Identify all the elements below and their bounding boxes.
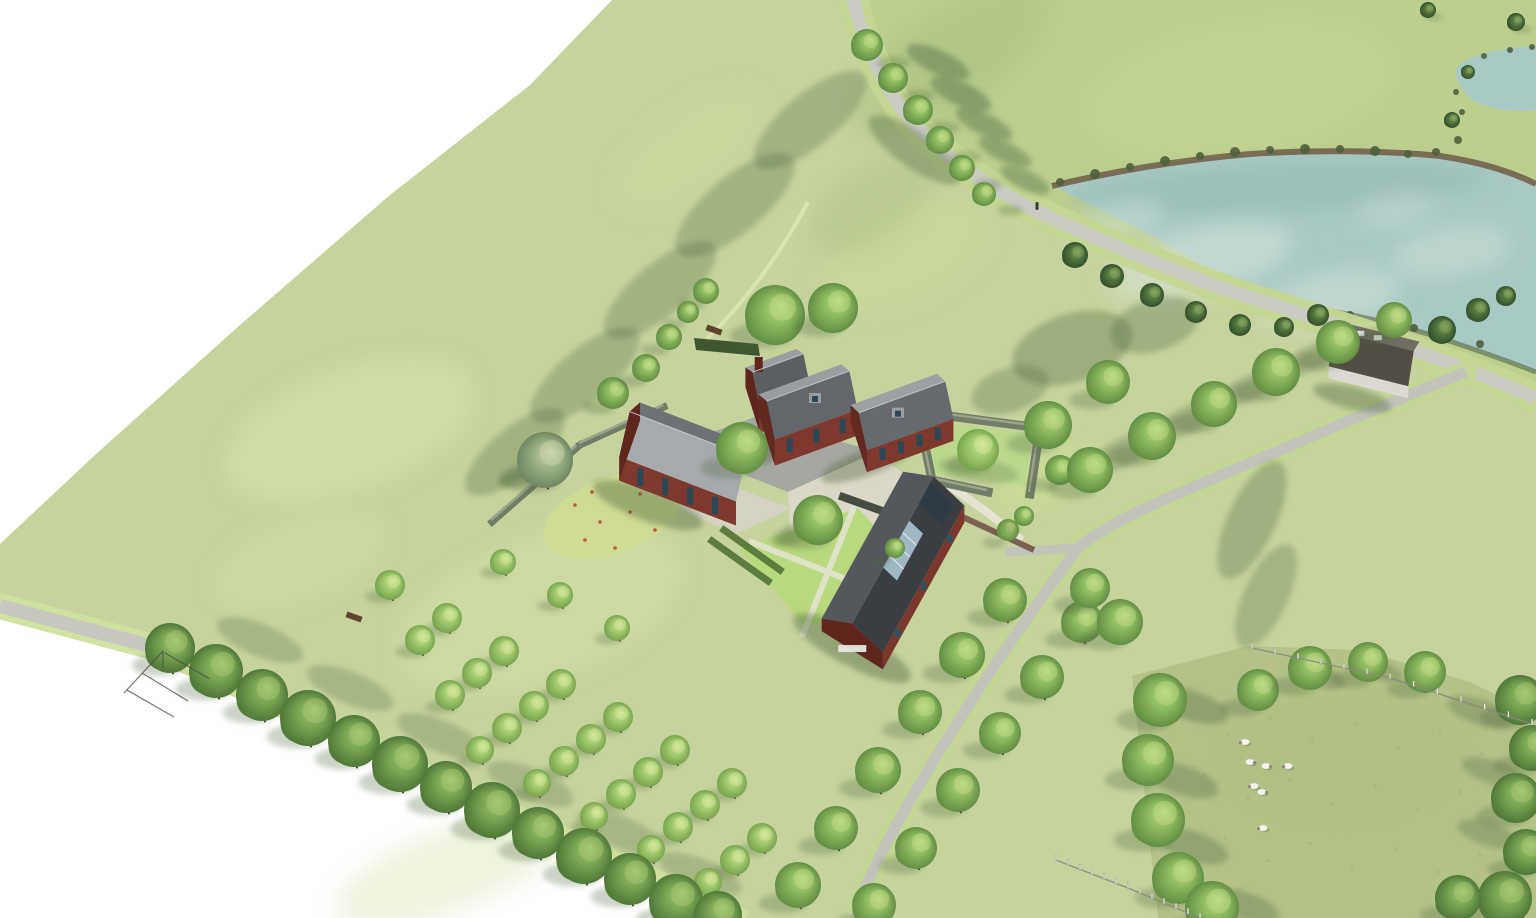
paddock-speckle: [1330, 802, 1333, 805]
sheep-head: [1282, 765, 1285, 768]
lakeshore-bushe: [1466, 298, 1490, 322]
bank-tree-highlight: [643, 358, 656, 371]
wildflower-dot: [583, 538, 587, 542]
upper-lane-tree-highlight: [1271, 355, 1293, 377]
reed-clump: [1454, 136, 1462, 144]
orchard-tree-highlight: [729, 772, 743, 786]
orchard-tree-highlight: [615, 706, 629, 720]
main-house-window: [813, 428, 819, 442]
person-on-road: [1036, 202, 1039, 210]
fence-post: [1531, 719, 1533, 725]
orchard-tree-highlight: [504, 717, 518, 731]
roadside-tree-highlight: [915, 99, 929, 113]
reed-clump: [1370, 146, 1380, 156]
orchard-tree-highlight: [474, 662, 488, 676]
orchard-tree-highlight: [500, 553, 512, 565]
fence-post: [1389, 673, 1391, 679]
fence-post: [1460, 696, 1462, 702]
orchard-tree-highlight: [618, 783, 632, 797]
orchard-tree-highlight: [672, 739, 686, 753]
reed-clump: [1476, 340, 1484, 348]
paddock-speckle: [1438, 728, 1441, 731]
walled-garden-tree-highlight: [974, 435, 993, 454]
paddock-speckle: [1393, 847, 1396, 850]
orchard-tree-highlight: [447, 684, 461, 698]
reed-clump: [1196, 152, 1204, 160]
bank-tree-highlight: [703, 282, 715, 294]
paddock-speckle: [1226, 733, 1229, 736]
orchard-tree-highlight: [705, 872, 718, 885]
roadside-tree-highlight: [864, 34, 878, 48]
boundary-row-tree-highlight: [165, 630, 188, 653]
paddock-rim-tree-highlight: [1364, 648, 1382, 666]
reed-clump: [1266, 146, 1274, 154]
fence-post: [1508, 711, 1510, 717]
orchard-tree-highlight: [557, 586, 569, 598]
lakeshore-bushe: [1062, 242, 1088, 268]
paddock-speckle: [1416, 808, 1419, 811]
orchard-tree-highlight: [501, 640, 515, 654]
upper-lane-tree-highlight: [1390, 307, 1406, 323]
specimen-tree-highlight: [539, 440, 564, 465]
fence-post: [1091, 869, 1093, 875]
boundary-row-tree-highlight: [625, 861, 648, 884]
driveway-branch: [1006, 548, 1078, 552]
lakeshore-bushe: [1100, 264, 1124, 288]
lakeshore-bushe: [1496, 286, 1516, 306]
roadside-tree-highlight: [937, 130, 950, 143]
paddock-rim-tree-highlight: [1207, 889, 1231, 913]
wildflower-dot: [598, 520, 602, 524]
wildflower-dot: [573, 503, 577, 507]
fence-post: [1320, 658, 1322, 664]
lakeshore-bushe-highlight: [1439, 320, 1452, 333]
avenue-tree-highlight: [793, 869, 814, 890]
farmstead-tree-highlight: [737, 430, 760, 453]
avenue-tree-highlight: [832, 812, 852, 832]
orchard-tree-highlight: [675, 816, 689, 830]
lakeshore-bushe-highlight: [1450, 114, 1457, 121]
farmstead-tree-highlight: [1022, 509, 1031, 518]
paddock-speckle: [1223, 836, 1226, 839]
orchard-tree-highlight: [477, 740, 490, 753]
lakeshore-bushe-highlight: [1282, 320, 1291, 329]
paddock-right-tree-highlight: [1453, 882, 1474, 903]
roadside-tree-shadow: [997, 205, 1022, 215]
reed-clump: [1453, 89, 1459, 95]
orchard-tree-highlight: [591, 806, 604, 819]
fence-post: [1187, 908, 1189, 914]
fence-post: [1297, 653, 1299, 659]
farmstead-tree-shadow: [1000, 524, 1021, 532]
farmstead-tree-shadow: [982, 538, 1005, 547]
orchard-tree-highlight: [759, 827, 773, 841]
fence-post: [1139, 888, 1141, 894]
fence-post: [1199, 913, 1201, 918]
sheep-head: [1248, 785, 1251, 788]
paddock-rim-tree-highlight: [1115, 606, 1136, 627]
grass-tone-patch: [1220, 700, 1460, 820]
orchard-tree-highlight: [588, 728, 602, 742]
west-barn-window: [687, 487, 693, 504]
boundary-row-tree-highlight: [533, 815, 556, 838]
paddock-speckle: [1436, 870, 1439, 873]
reed-clump: [1404, 150, 1412, 158]
wildflower-dot: [653, 528, 657, 532]
paddock-rim-tree-highlight: [1143, 742, 1166, 765]
east-house-dormer-window: [895, 411, 901, 417]
lakeshore-bushe: [1274, 317, 1294, 337]
paddock-rim-tree-highlight: [1155, 681, 1179, 705]
pasture-bushe-highlight: [1426, 4, 1433, 11]
paddock-right-tree-highlight: [1500, 879, 1524, 903]
boundary-row-tree-highlight: [486, 790, 511, 815]
reed-clump: [1056, 178, 1064, 186]
paddock-rim-tree-highlight: [1153, 801, 1177, 825]
bank-tree-highlight: [769, 294, 796, 321]
lakeshore-bushe: [1444, 112, 1460, 128]
lakeshore-bushe-highlight: [1476, 301, 1487, 312]
reed-clump: [1459, 109, 1465, 115]
paddock-speckle: [1310, 740, 1313, 743]
avenue-tree-highlight: [1038, 661, 1058, 681]
driveway-branch-surface: [1006, 548, 1078, 552]
upper-lane-tree-highlight: [1147, 419, 1169, 441]
fence-post: [1343, 663, 1345, 669]
paddock-speckle: [1288, 778, 1291, 781]
fence-post: [1437, 688, 1439, 694]
sheep-head: [1239, 741, 1242, 744]
paddock-speckle: [1480, 752, 1483, 755]
fence-post: [1127, 883, 1129, 889]
reed-clump: [1529, 44, 1535, 50]
orchard-tree-highlight: [444, 607, 458, 621]
sheep-head: [1269, 765, 1272, 768]
lakeshore-bushe-highlight: [1504, 289, 1513, 298]
west-barn-window: [712, 497, 718, 514]
lakeshore-bushe: [1461, 65, 1475, 79]
orchard-tree-highlight: [417, 629, 431, 643]
lakeshore-bushe-highlight: [1238, 317, 1248, 327]
reed-clump: [1090, 169, 1100, 179]
avenue-tree-highlight: [912, 833, 931, 852]
main-house-window: [787, 438, 793, 452]
avenue-tree-highlight: [957, 639, 978, 660]
gate-sketch-line: [127, 690, 174, 717]
fence-post: [1151, 893, 1153, 899]
east-meadow-tree-highlight: [1043, 408, 1065, 430]
south-barn-window: [921, 582, 927, 591]
south-barn-glazed-base-band: [838, 645, 866, 652]
orchard-tree-highlight: [558, 673, 572, 687]
boundary-row-tree-highlight: [349, 723, 372, 746]
boundary-row-tree-highlight: [441, 769, 464, 792]
avenue-tree-highlight: [954, 774, 974, 794]
paddock-speckle: [1246, 796, 1249, 799]
fence-post: [1115, 878, 1117, 884]
reed-clump: [1432, 148, 1440, 156]
orchard-tree-highlight: [531, 695, 545, 709]
avenue-tree-highlight: [996, 718, 1015, 737]
reed-clump: [1481, 53, 1487, 59]
reed-clump: [1507, 47, 1513, 53]
paddock-rim-tree-highlight: [1173, 860, 1196, 883]
south-barn-window: [947, 534, 953, 543]
bank-tree-highlight: [666, 328, 678, 340]
reed-clump: [1160, 156, 1170, 166]
east-house-window: [935, 428, 941, 440]
paddock-rim-tree-highlight: [1254, 675, 1273, 694]
fence-post: [1055, 855, 1057, 861]
upper-lane-tree-highlight: [1209, 388, 1230, 409]
aerial-site-rendering: [0, 0, 1536, 918]
bank-tree-highlight: [686, 304, 696, 314]
avenue-tree-highlight: [1001, 584, 1021, 604]
boundary-row-tree-highlight: [257, 677, 280, 700]
east-meadow-tree-highlight: [1104, 366, 1124, 386]
lakeshore-bushe-highlight: [1316, 307, 1326, 317]
fence-post: [1274, 648, 1276, 654]
reed-clump: [1230, 147, 1240, 157]
orchard-tree-highlight: [614, 619, 626, 631]
farmstead-tree-highlight: [813, 502, 836, 525]
paddock-speckle: [1268, 716, 1271, 719]
boundary-row-tree-highlight: [302, 698, 327, 723]
fence-post: [1103, 874, 1105, 880]
lakeshore-bushe-highlight: [1467, 67, 1473, 73]
wildflower-dot: [613, 546, 617, 550]
sheep-head: [1265, 791, 1268, 794]
orchard-tree-highlight: [561, 750, 575, 764]
east-house-window: [880, 448, 886, 460]
fence-post: [1484, 704, 1486, 710]
fence-post: [1366, 668, 1368, 674]
upper-lane-tree-highlight: [1085, 454, 1106, 475]
lakeshore-bushe-highlight: [1072, 246, 1084, 258]
farmstead-tree-highlight: [893, 541, 902, 550]
sheep-head: [1257, 827, 1260, 830]
paddock-speckle: [1266, 859, 1269, 862]
orchard-tree-highlight: [387, 574, 401, 588]
boundary-row-tree-highlight: [578, 836, 603, 861]
avenue-tree-highlight: [916, 696, 936, 716]
roadside-tree-highlight: [982, 185, 993, 196]
lakeshore-bushe: [1307, 304, 1329, 326]
paddock-speckle: [1458, 790, 1461, 793]
lakeshore-bushe: [1185, 301, 1207, 323]
farmstead-tree-shadow: [871, 556, 892, 564]
paddock-speckle: [1478, 853, 1481, 856]
fence-post: [1413, 681, 1415, 687]
boundary-row-tree-highlight: [671, 882, 695, 906]
paddock-right-tree-highlight: [1511, 780, 1534, 803]
roadside-tree-highlight: [959, 159, 971, 171]
fence-post: [1163, 898, 1165, 904]
rendering-stage: [0, 0, 1536, 918]
lakeshore-bushe: [1140, 283, 1164, 307]
main-house-dormer-window: [812, 396, 818, 402]
lakeshore-bushe-highlight: [1194, 304, 1204, 314]
orchard-tree-highlight: [645, 761, 659, 775]
orchard-tree-highlight: [534, 773, 547, 786]
south-barn-window: [895, 629, 901, 638]
boundary-row-tree-highlight: [211, 652, 235, 676]
lakeshore-bushe: [1229, 314, 1251, 336]
fence-post: [1067, 860, 1069, 866]
upper-lane-tree-highlight: [1334, 326, 1354, 346]
orchard-tree-highlight: [732, 849, 746, 863]
pasture-bushe-highlight: [1514, 16, 1522, 24]
orchard-tree-highlight: [648, 839, 661, 852]
roadside-tree-highlight: [890, 67, 904, 81]
main-house-window: [840, 419, 846, 433]
paddock-speckle: [1353, 722, 1356, 725]
boundary-row-tree-highlight: [394, 744, 419, 769]
bank-tree-highlight: [828, 290, 851, 313]
sheep-head: [1253, 761, 1256, 764]
avenue-tree-highlight: [873, 754, 894, 775]
reed-clump: [1126, 163, 1134, 171]
paddock-rim-tree-highlight: [1086, 574, 1104, 592]
wildflower-dot: [590, 490, 594, 494]
west-barn-window: [662, 478, 668, 495]
west-barn-window: [637, 468, 643, 485]
fence-post: [1175, 903, 1177, 909]
fence-post: [1251, 643, 1253, 649]
paddock-speckle: [1308, 841, 1311, 844]
lakeshore-bushe-highlight: [1150, 286, 1161, 297]
avenue-tree-highlight: [870, 889, 890, 909]
reed-clump: [1336, 145, 1344, 153]
paddock-speckle: [1350, 865, 1353, 868]
lakeshore-bushe-highlight: [1110, 267, 1121, 278]
fence-post: [1079, 864, 1081, 870]
paddock-rim-tree-highlight: [1421, 657, 1440, 676]
east-house-window: [916, 434, 922, 446]
paddock-speckle: [1396, 746, 1399, 749]
orchard-tree-highlight: [702, 794, 716, 808]
reed-clump: [1300, 144, 1310, 154]
paddock-speckle: [1373, 784, 1376, 787]
lakeshore-bushe: [1428, 316, 1456, 344]
east-house-window: [898, 441, 904, 453]
